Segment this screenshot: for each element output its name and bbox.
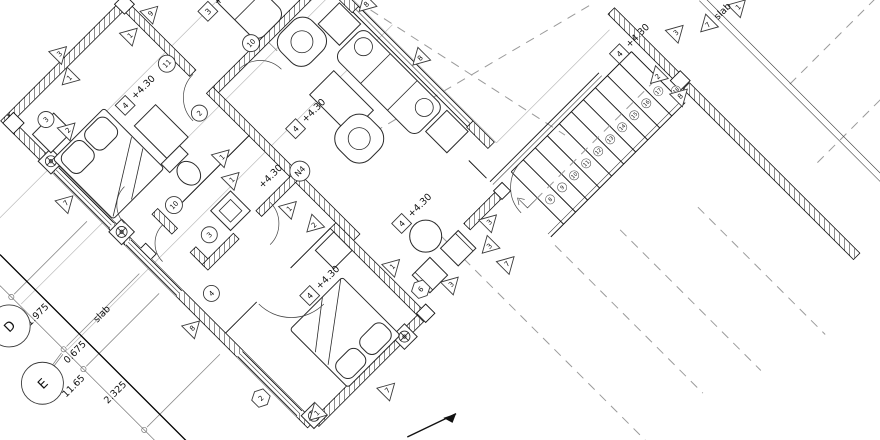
paper-background bbox=[0, 0, 880, 440]
floor-plan-canvas: 8 9 10 11 12 13 14 15 16 17 18 bbox=[0, 0, 880, 440]
floor-plan-drawing: 8 9 10 11 12 13 14 15 16 17 18 bbox=[0, 0, 880, 440]
